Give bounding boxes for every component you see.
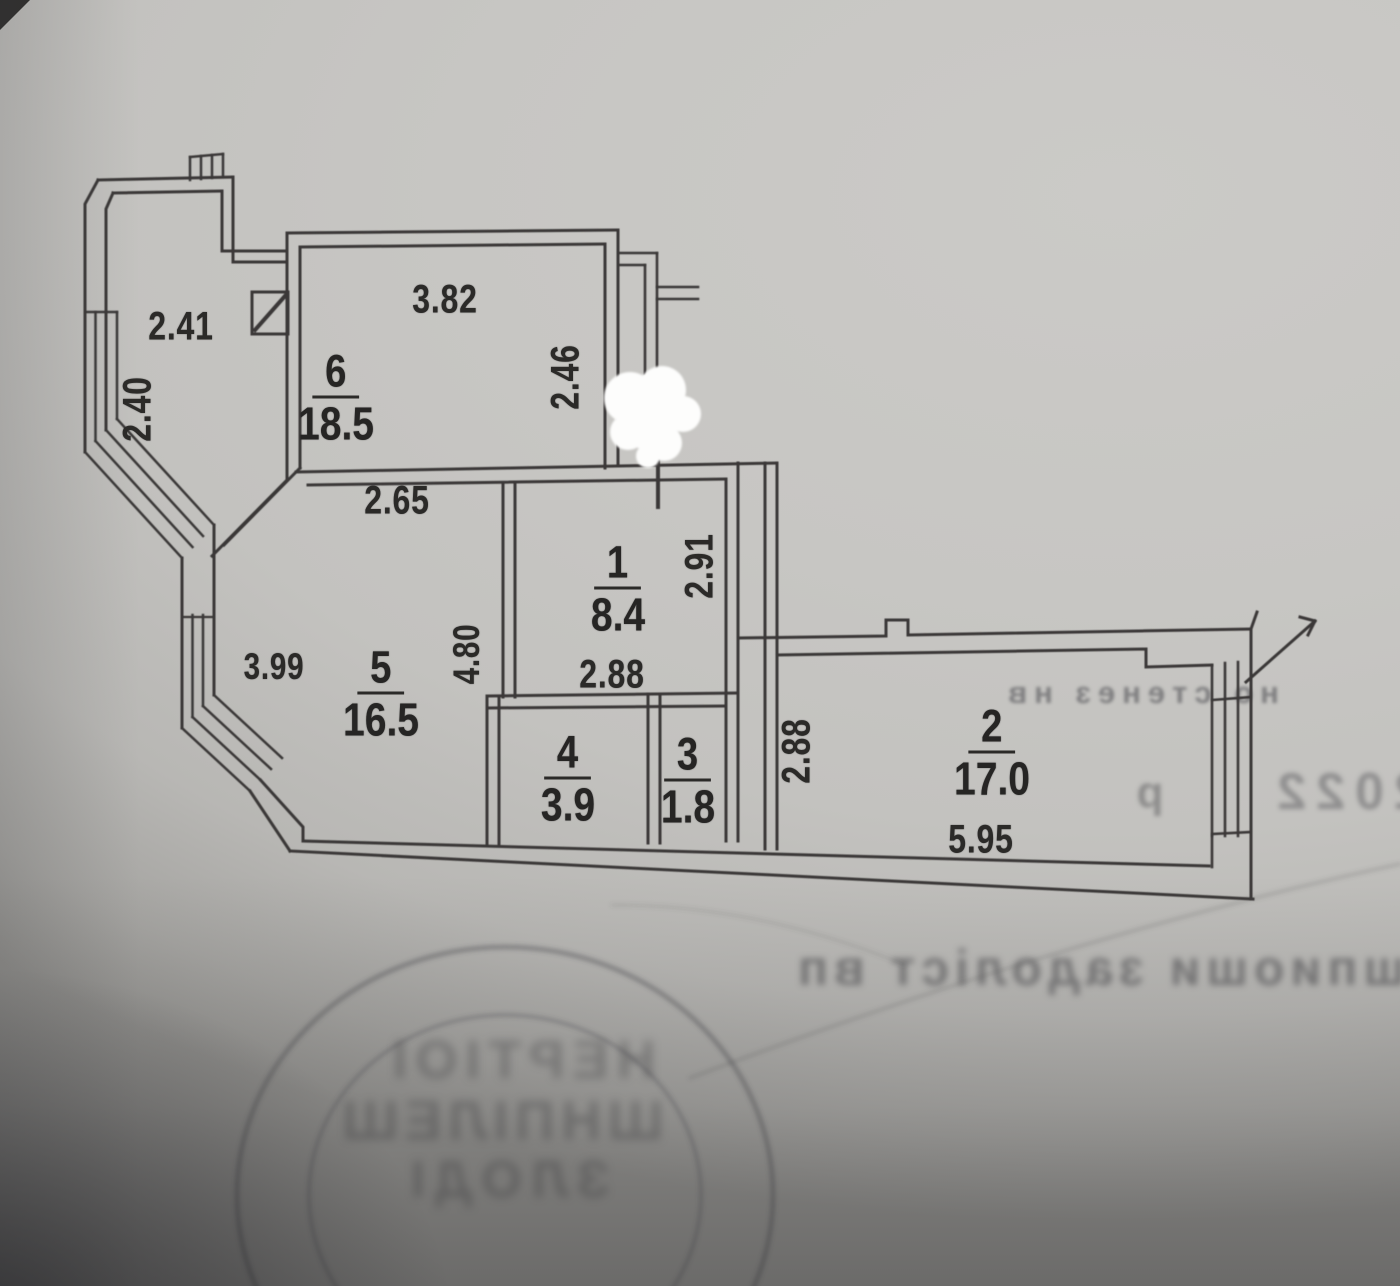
room2-window-hatch (1212, 629, 1251, 899)
room5-number: 5 (358, 645, 405, 695)
dim-room2-left: 2.88 (775, 718, 820, 783)
dim-room5-top: 2.65 (364, 479, 429, 524)
room6-number: 6 (313, 349, 360, 399)
room3-number: 3 (665, 732, 712, 782)
vent-shaft-icon (252, 292, 288, 334)
room2-label: 2 17.0 (947, 704, 1037, 803)
room1-area: 8.4 (591, 591, 645, 639)
floor-plan-drawing (0, 0, 1400, 1286)
dim-room2-bottom: 5.95 (948, 818, 1013, 863)
dim-hall-left: 2.40 (116, 376, 161, 441)
room5-area: 16.5 (343, 696, 419, 744)
room3-area: 1.8 (661, 783, 715, 831)
room1-label: 1 8.4 (586, 540, 650, 639)
dim-room1-right: 2.91 (678, 533, 723, 598)
room2-area: 17.0 (954, 755, 1030, 803)
room6-area: 18.5 (298, 400, 374, 448)
scanned-floor-plan-page: но стенез нв 2022 р пишпиоши задоліст вп… (0, 0, 1400, 1286)
room4-label: 4 3.9 (536, 730, 600, 829)
room5-label: 5 16.5 (336, 645, 426, 744)
dim-room1-bottom: 2.88 (579, 653, 644, 698)
dim-hall-top: 2.41 (148, 305, 213, 350)
room4-area: 3.9 (541, 781, 595, 829)
bottom-wall (290, 841, 1253, 899)
room3-label: 3 1.8 (656, 732, 720, 831)
room2-walls (738, 612, 1315, 682)
room4-number: 4 (545, 730, 592, 780)
room1-number: 1 (595, 540, 642, 590)
dim-room6-top: 3.82 (412, 278, 477, 323)
lower-bay-walls (182, 525, 303, 851)
dim-room6-right: 2.46 (544, 344, 589, 409)
dim-room5-right: 4.80 (446, 624, 488, 685)
room2-number: 2 (969, 704, 1016, 754)
room6-label: 6 18.5 (291, 349, 381, 448)
erased-wall-stub (618, 253, 698, 374)
dim-room5-left: 3.99 (244, 646, 305, 688)
